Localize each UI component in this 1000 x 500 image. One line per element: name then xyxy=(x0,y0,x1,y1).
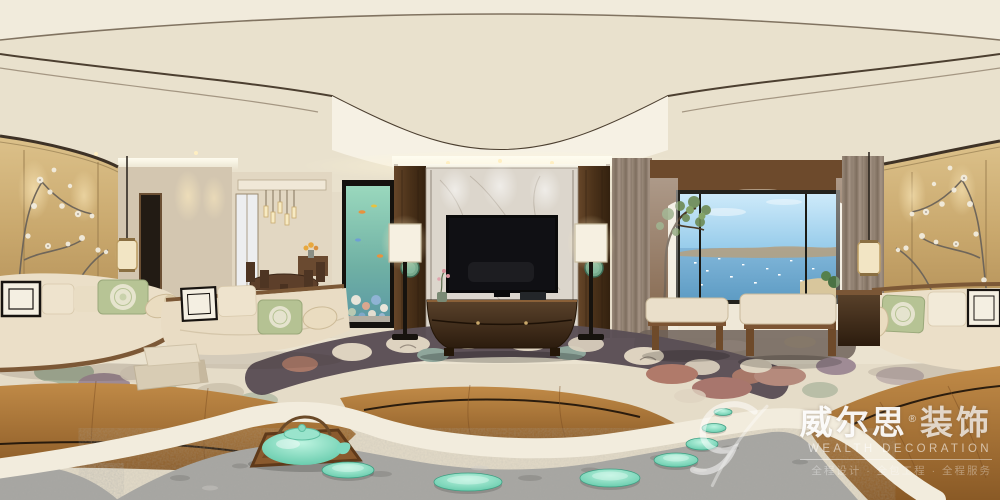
decor-box xyxy=(520,292,546,300)
television xyxy=(446,215,558,297)
panorama-photo: 威尔思®装饰 WEALTH DECORATION 全程设计 · 全包工程 · 全… xyxy=(0,0,1000,500)
pillow-cream xyxy=(217,285,256,316)
mirror xyxy=(140,194,161,290)
pillow-green-medallion xyxy=(98,280,148,314)
pillow-green-medallion xyxy=(258,300,302,334)
hanging-lantern-left xyxy=(115,238,139,272)
pillow-cream xyxy=(928,292,966,326)
pillow-cream xyxy=(42,284,74,314)
stacked-floor-cushions xyxy=(134,344,208,390)
pillow-black-border xyxy=(2,282,40,316)
pillow-black-border xyxy=(968,290,1000,326)
curtain-left-of-window xyxy=(612,158,652,348)
pillow-black-border xyxy=(181,287,217,321)
pillow-cream xyxy=(74,286,100,312)
scene-canvas xyxy=(0,0,1000,500)
side-table-right xyxy=(836,290,882,346)
